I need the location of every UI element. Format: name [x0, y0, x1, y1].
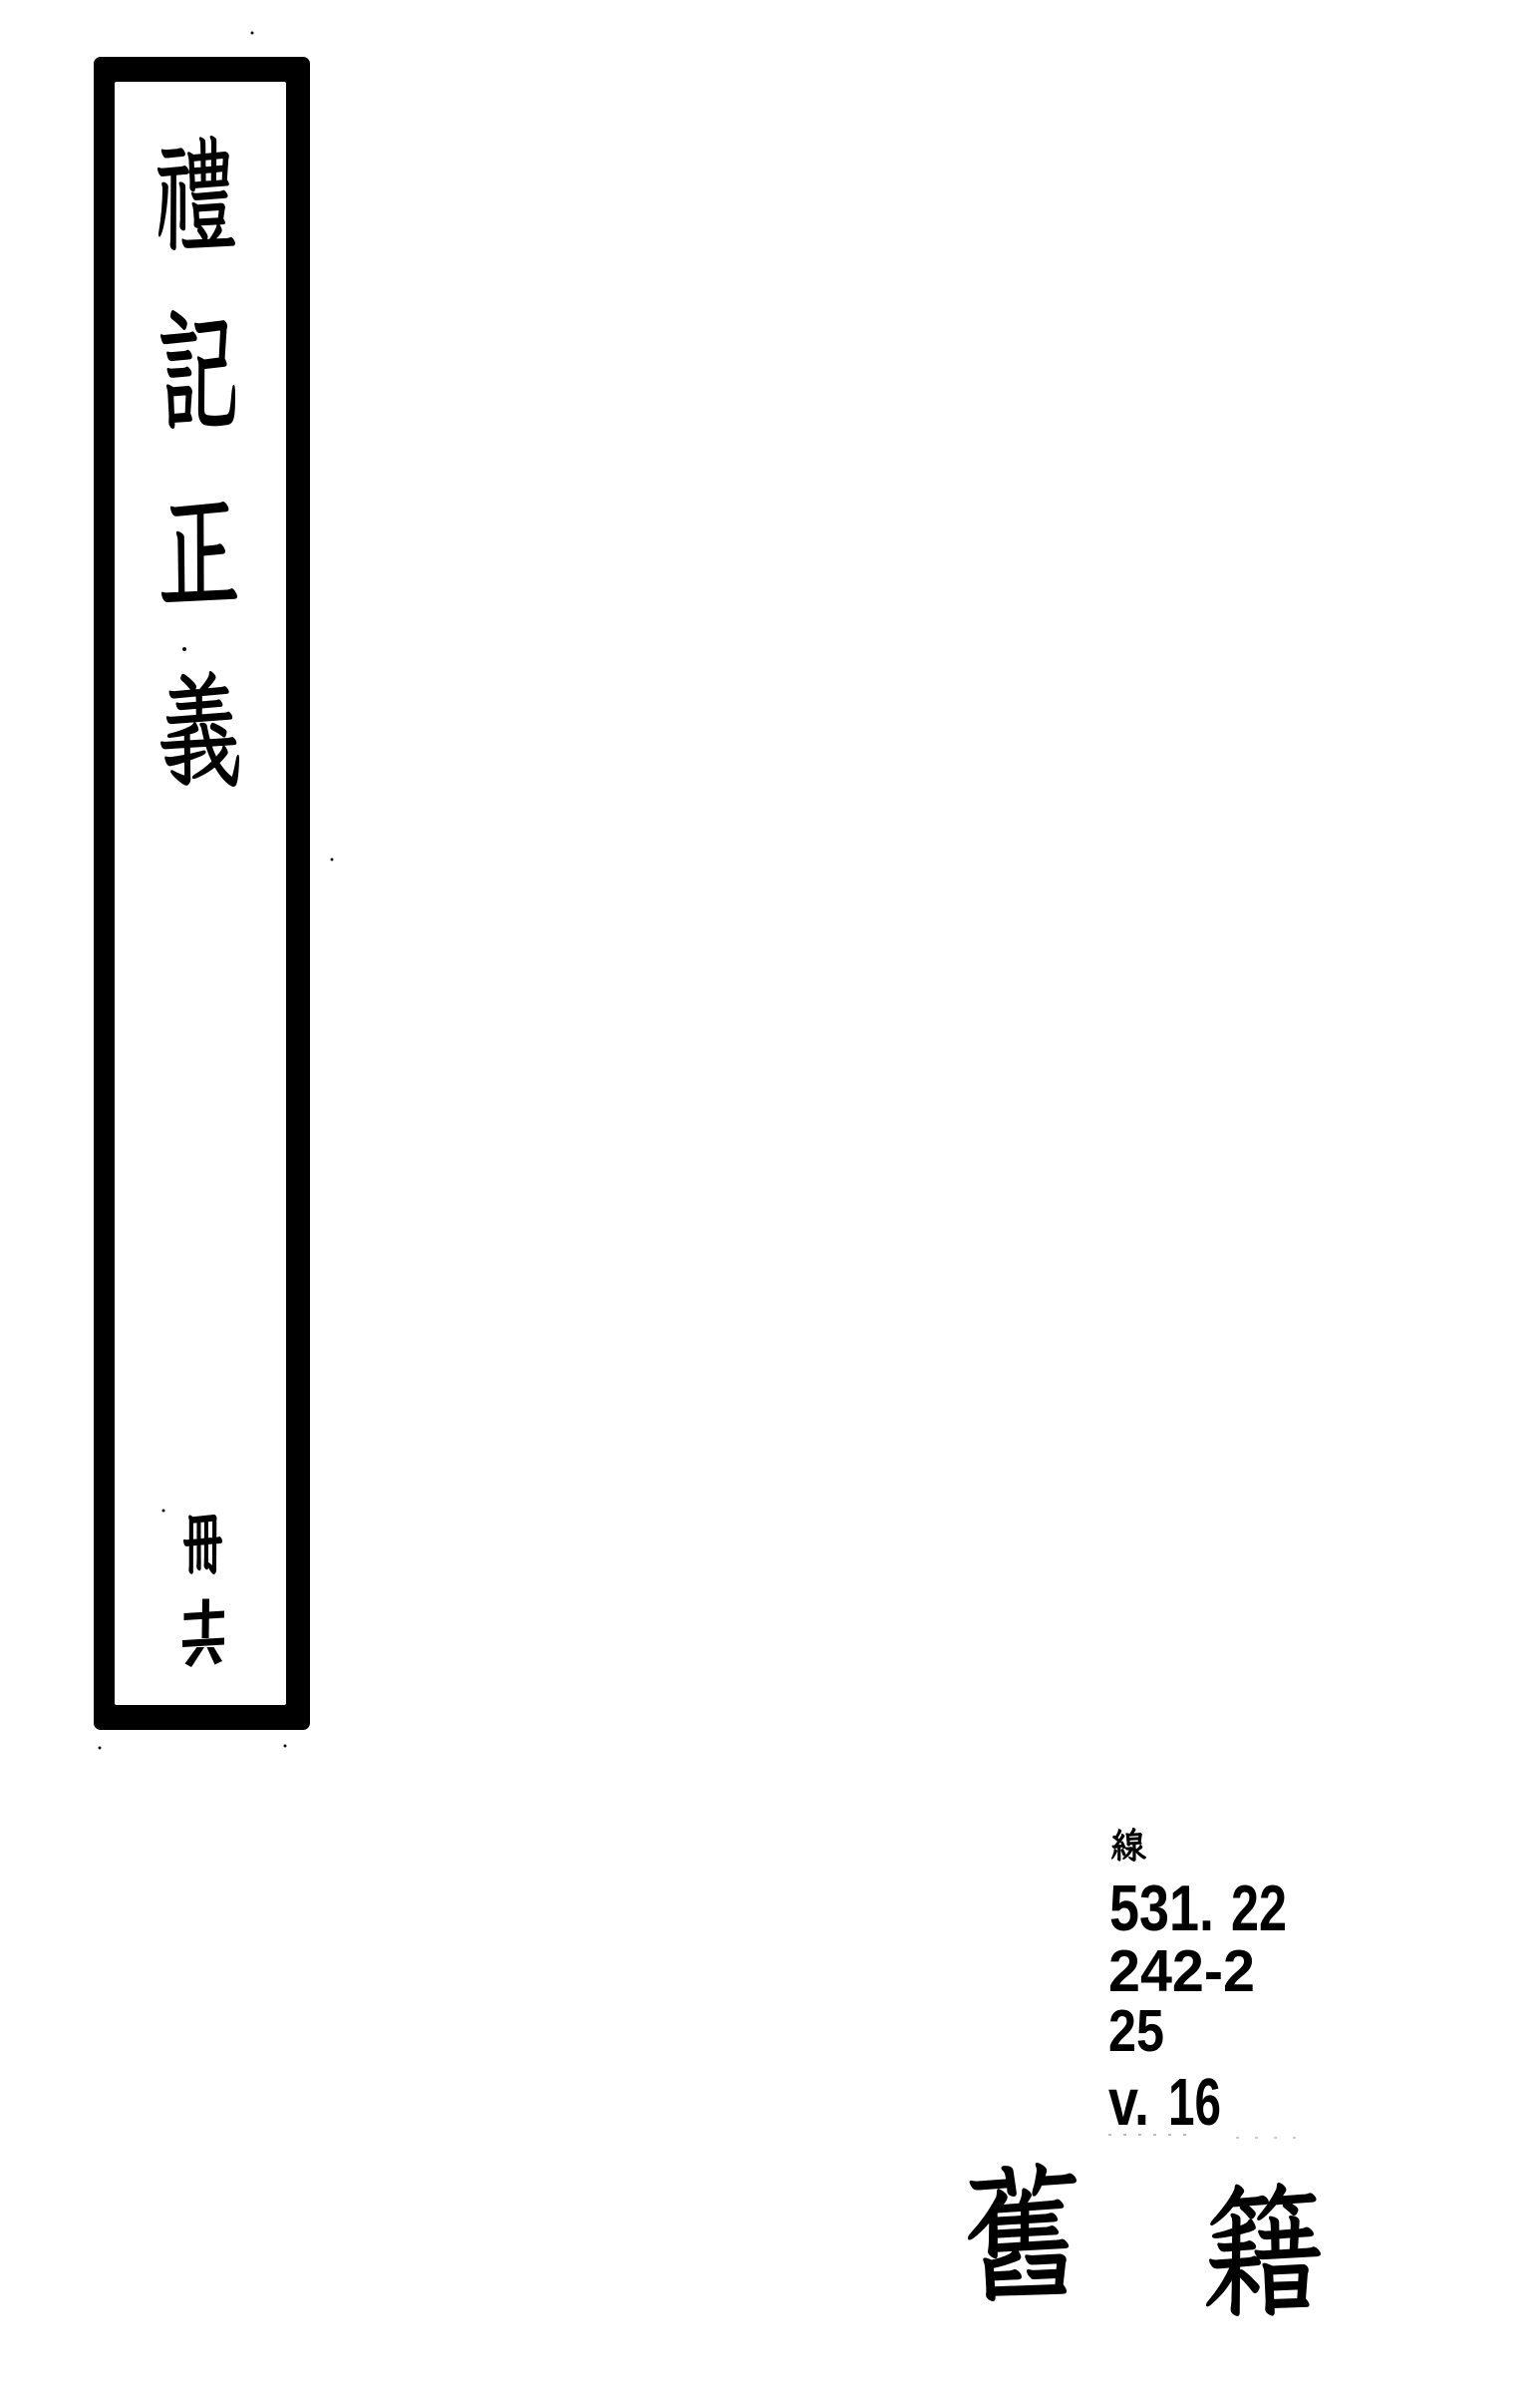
svg-text:531.: 531. [1109, 1873, 1214, 1944]
svg-text:25: 25 [1108, 1998, 1164, 2064]
svg-text:22: 22 [1231, 1873, 1287, 1944]
svg-text:242-2: 242-2 [1108, 1938, 1255, 2004]
svg-text:16: 16 [1168, 2065, 1221, 2140]
svg-text:v.: v. [1108, 2065, 1149, 2140]
